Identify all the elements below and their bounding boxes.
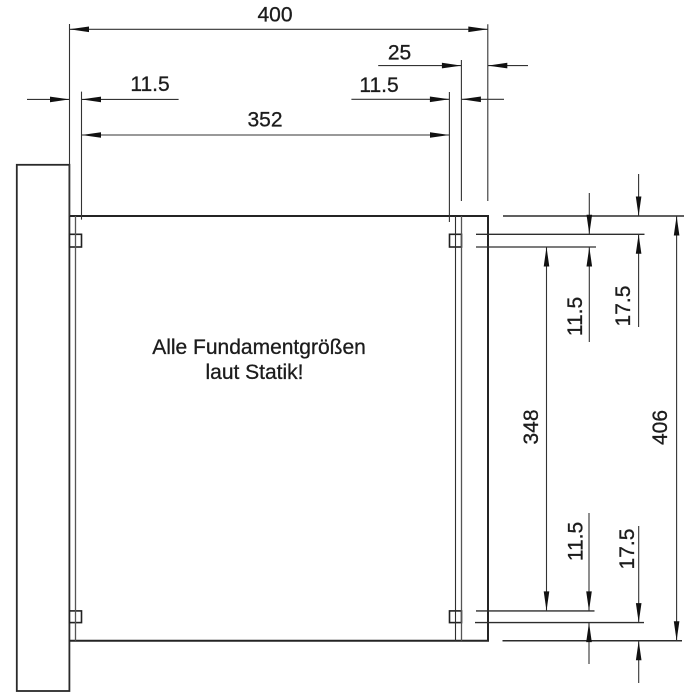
svg-text:348: 348: [520, 409, 543, 444]
svg-text:400: 400: [257, 4, 292, 27]
svg-text:406: 406: [649, 410, 672, 445]
svg-text:25: 25: [388, 42, 411, 65]
svg-text:11.5: 11.5: [564, 297, 587, 336]
svg-text:11.5: 11.5: [359, 74, 398, 97]
svg-text:laut Statik!: laut Statik!: [205, 361, 303, 384]
svg-text:Alle Fundamentgrößen: Alle Fundamentgrößen: [152, 336, 366, 359]
svg-text:17.5: 17.5: [612, 286, 635, 327]
svg-text:11.5: 11.5: [565, 522, 588, 561]
svg-text:11.5: 11.5: [130, 73, 169, 96]
svg-text:17.5: 17.5: [616, 529, 639, 570]
svg-text:352: 352: [247, 109, 282, 132]
